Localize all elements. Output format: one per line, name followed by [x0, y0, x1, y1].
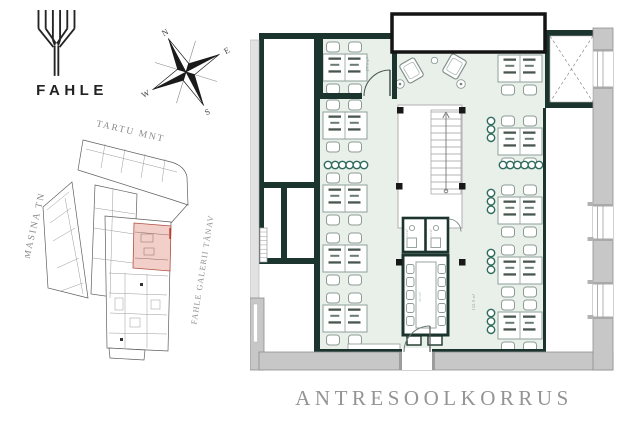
- radiator: [260, 228, 267, 262]
- site-plan: TARTU MNT MASINA TN FAHLE GALERII TÄNAV: [25, 108, 237, 366]
- stool-column: [487, 309, 494, 333]
- floor-title: ANTRESOOLKORRUS: [250, 386, 618, 411]
- booth-table: [431, 238, 441, 248]
- left-window: [254, 304, 258, 342]
- stool-column: [487, 117, 494, 141]
- booth-table: [407, 238, 417, 248]
- street-label-tartu-mnt: TARTU MNT: [95, 119, 165, 144]
- fahle-tree-logo-icon: [26, 8, 88, 80]
- compass-star: N E S W: [136, 22, 236, 122]
- area-label-booth-2: 3.3 m²: [429, 229, 433, 237]
- area-label-booth-1: 3.3 m²: [405, 229, 409, 237]
- window: [588, 202, 614, 241]
- site-detail-dot: [140, 283, 143, 286]
- compass-east-label: E: [222, 45, 231, 56]
- fahle-logo-text: FAHLE: [30, 82, 114, 99]
- stool-column: [487, 189, 494, 213]
- compass-rose: N E S W: [136, 22, 236, 122]
- booth-stool: [409, 225, 414, 230]
- window: [588, 280, 614, 319]
- booth-stool: [433, 225, 438, 230]
- staircase: [398, 105, 462, 228]
- floor-plan: 27.0 m² 152.9 m² 13.1 m² 3.3 m² 3.3 m²: [250, 12, 618, 378]
- shaft: [550, 36, 593, 102]
- compass-north-label: N: [160, 26, 170, 38]
- meeting-room: [403, 255, 448, 345]
- fahle-logo: FAHLE: [16, 6, 100, 102]
- highlighted-unit: [133, 223, 171, 271]
- area-label-meeting-room: 13.1 m²: [418, 292, 422, 302]
- void-opening: [392, 14, 545, 52]
- street-label-fahle-galerii-tanav: FAHLE GALERII TÄNAV: [189, 214, 215, 325]
- side-table-dot: [460, 83, 463, 86]
- stool-column: [487, 249, 494, 273]
- side-table-dot: [399, 83, 402, 86]
- decor-item: [431, 57, 437, 63]
- page: FAHLE N E S W: [0, 0, 640, 426]
- compass-west-label: W: [139, 87, 151, 100]
- site-detail-dot: [120, 338, 123, 341]
- area-label-open-space: 152.9 m²: [471, 293, 476, 310]
- cabinet: [407, 336, 421, 345]
- area-label-office-room: 27.0 m²: [365, 56, 370, 71]
